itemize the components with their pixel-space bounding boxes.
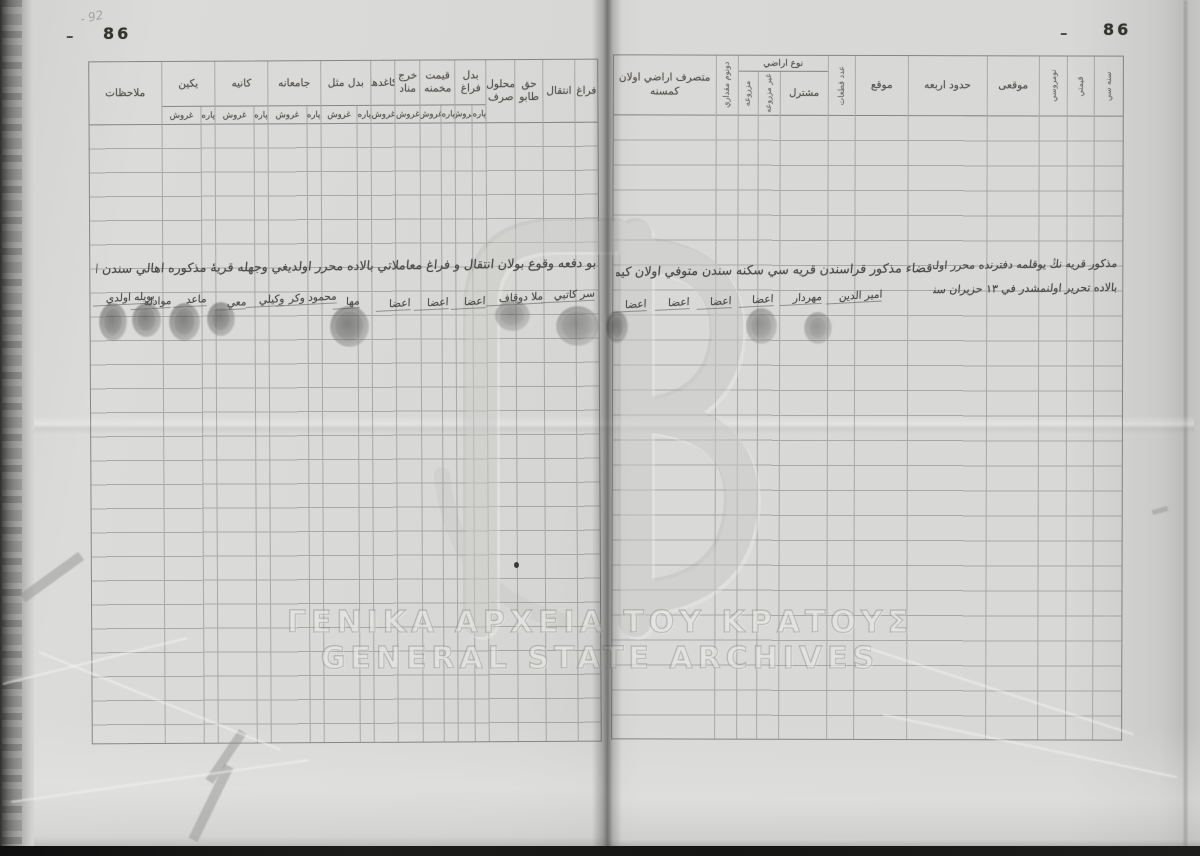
- column-body: [779, 116, 828, 739]
- scanner-background: [0, 846, 1200, 856]
- seal-stamp: [804, 312, 832, 344]
- column-donum-amount: دونوم مقداري: [715, 56, 739, 739]
- right-page-number: 86: [1103, 20, 1131, 39]
- column-header: قيمت مخمنه: [421, 60, 455, 105]
- column-hakk-tapu: حق طابو: [516, 60, 547, 741]
- column-body: [757, 116, 780, 739]
- column-header: انتقال: [543, 60, 574, 123]
- left-page-number: 86: [103, 24, 131, 43]
- signature-member: اعضا: [697, 295, 732, 310]
- column-location: موقع: [854, 56, 909, 739]
- right-dash-mark: –: [1060, 24, 1068, 42]
- column-year: سنه سي: [1093, 57, 1123, 740]
- column-kiymet-muhammene: قيمت مخمنه غروش پاره: [421, 60, 460, 741]
- subheader-para: پاره: [202, 107, 215, 125]
- subcolumn-header: مشترل: [780, 72, 828, 116]
- subheader-para: پاره: [473, 105, 486, 123]
- column-header: جامعانه: [268, 61, 320, 106]
- seal-stamp: [330, 306, 369, 347]
- seal-stamp: [746, 308, 777, 344]
- column-intikal: انتقال: [543, 60, 578, 741]
- column-header: كاغدها: [372, 61, 395, 106]
- subheader-kurus: غروش: [216, 106, 254, 124]
- column-body: [715, 116, 738, 739]
- column-body: [321, 124, 360, 742]
- handwritten-note-line2: بالاده تحرير اولنمشدر في ١٣ حزيران سنه ٩…: [932, 281, 1118, 303]
- rotated-label: مزروعه: [744, 80, 752, 106]
- right-page-edge-crease: [1184, 0, 1187, 847]
- group-header: نوع اراضي: [738, 56, 828, 72]
- column-header: موقعى: [987, 56, 1039, 116]
- subheader-para: پاره: [254, 106, 267, 124]
- column-body: [737, 116, 758, 739]
- column-bedel-ferag: بدل فراغ غروش پاره: [456, 60, 491, 741]
- column-header: ملاحظات: [89, 62, 161, 125]
- rotated-label: دونوم مقداري: [723, 62, 731, 108]
- column-body: [90, 125, 165, 743]
- book-gutter-shadow: [592, 0, 622, 847]
- column-body: [986, 116, 1039, 739]
- subheader-kurus: غروش: [268, 106, 306, 124]
- subheader-kurus: غروش: [321, 106, 357, 124]
- column-four-boundaries: حدود اربعه: [907, 56, 987, 739]
- column-kagidha: كاغدها غروش: [372, 61, 400, 742]
- column-harc-munadi: خرج مناد غروش: [396, 61, 425, 742]
- column-header: حق طابو: [516, 60, 543, 123]
- column-header: خرج مناد: [396, 61, 420, 106]
- column-kaniye: كانيه غروش پاره: [215, 61, 271, 742]
- rotated-label: قيمتي: [1077, 76, 1085, 96]
- column-situation: موقعى: [986, 56, 1041, 739]
- signature-member: اعضا: [451, 295, 486, 310]
- scanned-register-spread: – 86 - 92 – 86 ملاحظات يكين غروش پاره كا…: [0, 0, 1200, 856]
- column-body: [827, 116, 855, 739]
- column-parcel-count: عدد قطعات: [827, 56, 856, 739]
- seal-stamp: [169, 303, 200, 341]
- column-possessor-name: متصرف اراضي اولان كمسنه: [612, 55, 716, 738]
- column-body: [487, 123, 518, 741]
- column-header: بدل مثل: [321, 61, 371, 106]
- subheader-kurus: غروش: [162, 107, 201, 125]
- subheader-kurus: غروش: [456, 105, 472, 123]
- seal-stamp: [99, 303, 127, 341]
- column-body: [612, 115, 715, 738]
- column-bedel-misl: بدل مثل غروش پاره: [321, 61, 375, 742]
- column-header: سنه سي: [1095, 57, 1123, 117]
- right-register-table: متصرف اراضي اولان كمسنه دونوم مقداري نوع…: [611, 54, 1124, 740]
- book-spine-texture: [2, 0, 22, 847]
- column-value: قيمتي: [1066, 57, 1095, 740]
- column-header: عدد قطعات: [829, 56, 855, 116]
- column-body: [269, 124, 310, 742]
- seal-stamp: [132, 303, 161, 337]
- signature-member: اعضا: [739, 293, 774, 308]
- column-header: يكين: [162, 62, 215, 107]
- column-body: [372, 124, 398, 742]
- subheader-kurus: غروش: [396, 106, 420, 124]
- subheader-para: پاره: [442, 105, 455, 123]
- column-body: [216, 124, 257, 742]
- handwritten-entry-right: قضاء مذكور قراسندن قريه سي سكنه سندن متو…: [615, 260, 933, 288]
- rotated-label: نومروسي: [1050, 70, 1058, 102]
- rotated-label: عدد قطعات: [838, 66, 846, 105]
- subheader-para: پاره: [358, 106, 371, 124]
- subcolumn-header: غير مزروعه: [758, 72, 779, 116]
- subheader-kurus: غروش: [372, 106, 395, 124]
- signature-member: اعضا: [414, 296, 449, 311]
- column-body: [1066, 117, 1094, 740]
- subcolumn-header: مزروعه: [738, 72, 757, 116]
- column-header: موقع: [856, 56, 908, 116]
- column-camiane: جامعانه غروش پاره: [268, 61, 324, 742]
- column-body: [162, 125, 204, 743]
- rotated-label: غير مزروعه: [765, 74, 773, 113]
- column-body: [1038, 116, 1067, 739]
- column-remarks: ملاحظات: [89, 62, 165, 743]
- signature-member: اعضا: [376, 297, 411, 312]
- signature-member: اعضا: [655, 296, 690, 311]
- column-body: [544, 123, 578, 741]
- column-header: متصرف اراضي اولان كمسنه: [614, 55, 716, 115]
- column-header: حدود اربعه: [909, 56, 987, 116]
- subheader-para: پاره: [307, 106, 320, 124]
- column-body: [396, 124, 423, 742]
- column-header: دونوم مقداري: [716, 56, 737, 116]
- column-body: [1093, 117, 1123, 740]
- column-header: بدل فراغ: [456, 60, 486, 105]
- ink-dot-mark: [514, 562, 519, 568]
- column-group-land-type: نوع اراضي مزروعه غير مزروعه مشترل: [737, 56, 829, 739]
- column-header: قيمتي: [1068, 57, 1094, 117]
- column-header: محلول صرف: [487, 60, 515, 123]
- column-number: نومروسي: [1038, 56, 1068, 739]
- column-body: [516, 123, 546, 741]
- column-mahlul-sarf: محلول صرف: [487, 60, 520, 741]
- seal-stamp: [495, 300, 530, 331]
- column-header: نومروسي: [1040, 56, 1067, 116]
- rotated-label: سنه سي: [1105, 71, 1113, 100]
- column-header: كانيه: [215, 61, 267, 106]
- left-dash-mark: –: [66, 27, 74, 45]
- subheader-kurus: غروش: [421, 105, 441, 123]
- seal-stamp: [207, 302, 235, 336]
- signature: مهردار: [780, 291, 822, 306]
- column-body: [907, 116, 986, 739]
- handwritten-note-line1: مذكور قريه نڭ يوقلمه دفترنده محرر اولديغ…: [932, 257, 1118, 279]
- column-body: [854, 116, 907, 739]
